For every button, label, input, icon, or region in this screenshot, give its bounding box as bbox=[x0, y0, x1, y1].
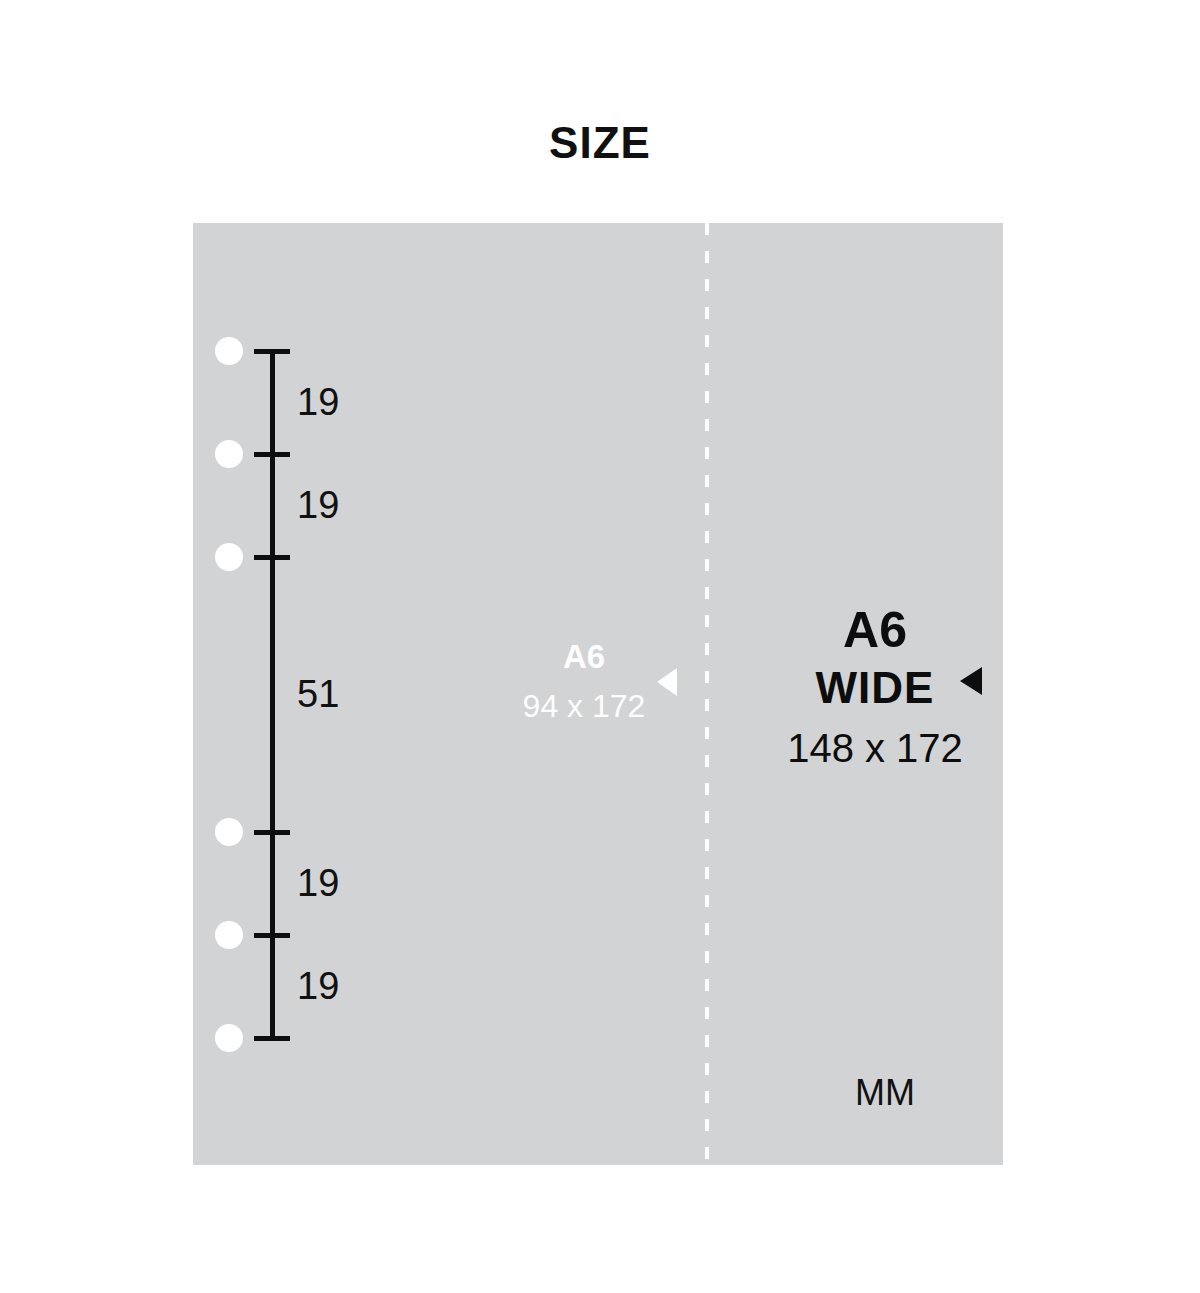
ruler-tick bbox=[254, 830, 290, 835]
ruler-tick bbox=[254, 555, 290, 560]
binder-hole bbox=[215, 1024, 243, 1052]
binder-hole bbox=[215, 543, 243, 571]
ruler-segment-label: 19 bbox=[297, 383, 339, 421]
unit-label: MM bbox=[785, 1073, 985, 1113]
a6-wide-pointer-icon bbox=[960, 667, 982, 695]
ruler-tick bbox=[254, 452, 290, 457]
size-diagram: SIZE 19 19 51 19 19 A6 94 x 172 bbox=[0, 0, 1200, 1293]
ruler-tick bbox=[254, 349, 290, 354]
a6-wide-size-name: A6 bbox=[775, 604, 975, 656]
a6-wide-size-label-group: A6 WIDE 148 x 172 bbox=[775, 604, 975, 770]
a6-size-name: A6 bbox=[499, 638, 669, 676]
binder-hole bbox=[215, 440, 243, 468]
fold-dashed-line-icon bbox=[705, 223, 709, 1165]
a6-wide-size-subname: WIDE bbox=[775, 664, 975, 712]
binder-hole bbox=[215, 818, 243, 846]
ruler-tick bbox=[254, 933, 290, 938]
a6-pointer-icon bbox=[657, 668, 677, 696]
a6-wide-size-dimensions: 148 x 172 bbox=[775, 726, 975, 770]
a6-size-dimensions: 94 x 172 bbox=[499, 688, 669, 724]
a6-size-label-group: A6 94 x 172 bbox=[499, 638, 669, 724]
binder-hole bbox=[215, 921, 243, 949]
binder-hole bbox=[215, 337, 243, 365]
ruler-segment-label: 19 bbox=[297, 864, 339, 902]
page-title: SIZE bbox=[0, 121, 1200, 165]
ruler-segment-label: 19 bbox=[297, 486, 339, 524]
ruler-segment-label: 19 bbox=[297, 967, 339, 1005]
ruler-segment-label: 51 bbox=[297, 675, 339, 713]
page-outline: 19 19 51 19 19 A6 94 x 172 A6 WIDE 148 x… bbox=[193, 223, 1003, 1165]
ruler-tick bbox=[254, 1036, 290, 1041]
